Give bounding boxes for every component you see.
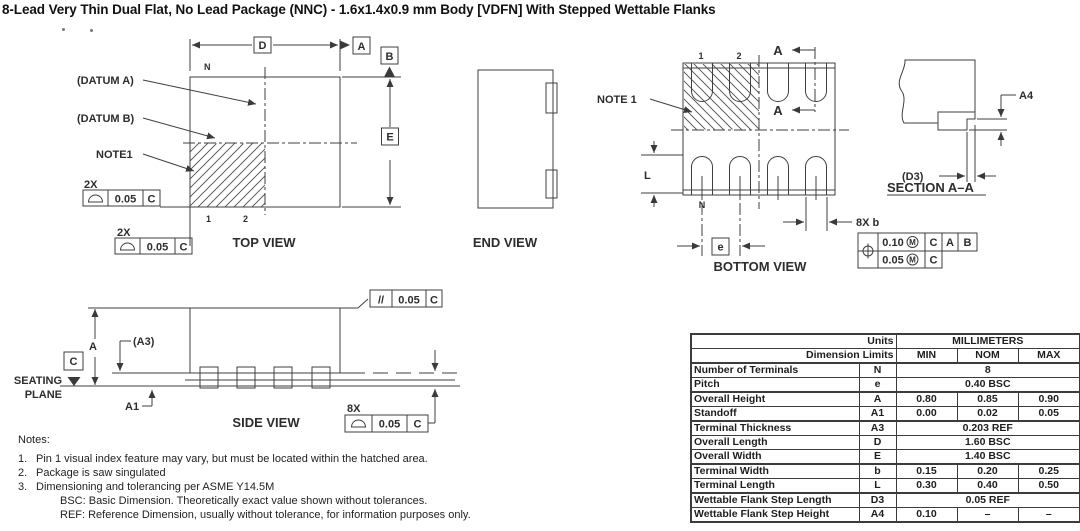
fcf-parallelism-frame: // 0.05 C	[370, 290, 442, 307]
note-item: 3. Dimensioning and tolerancing per ASME…	[18, 481, 618, 494]
top-view: D A B E N 1 2 (DATUM A) (DATUM B) NOTE1	[77, 37, 401, 254]
dim-l-label: L	[644, 170, 651, 182]
dim-value: 0.05	[1018, 407, 1080, 422]
seating-plane-label: SEATING	[14, 375, 62, 387]
table-row: Pitche0.40 BSC	[691, 378, 1080, 393]
bottom-view: A A 1 2 NOTE 1 L N e 8X b	[597, 43, 977, 274]
dim-name: Overall Width	[691, 450, 859, 465]
table-header-row: Dimension Limits MIN NOM MAX	[691, 349, 1080, 364]
fcf-tolerance: 0.05	[379, 419, 400, 431]
dim-name: Terminal Width	[691, 464, 859, 479]
dim-symbol: A4	[859, 508, 896, 523]
section-view: A4 (D3) SECTION A–A	[887, 60, 1034, 195]
col-max: MAX	[1018, 349, 1080, 364]
pitch-e-label: e	[717, 242, 723, 254]
fcf-datum: C	[414, 419, 422, 431]
section-label-a: A	[773, 103, 783, 118]
note-item: 1. Pin 1 visual index feature may vary, …	[18, 453, 618, 466]
pin2-label: 2	[243, 214, 248, 224]
note-number: 1.	[18, 453, 36, 466]
table-row: Wettable Flank Step HeightA40.10––	[691, 508, 1080, 523]
note1-callout: NOTE 1	[597, 94, 637, 106]
terminal	[200, 367, 218, 388]
qty-8x-b-label: 8X b	[856, 217, 880, 229]
datum-b-flag: B	[386, 51, 394, 63]
end-view-caption: END VIEW	[473, 235, 538, 250]
note-number: 2.	[18, 467, 36, 480]
units-label: Units	[691, 334, 896, 349]
dim-symbol: b	[859, 464, 896, 479]
dim-value: 0.30	[896, 479, 957, 494]
dim-value: 0.20	[957, 464, 1018, 479]
note-text: Pin 1 visual index feature may vary, but…	[36, 453, 428, 466]
table-row: Terminal ThicknessA30.203 REF	[691, 421, 1080, 436]
fcf-tolerance: 0.05	[115, 194, 136, 206]
terminal	[274, 367, 292, 388]
dim-name: Wettable Flank Step Length	[691, 493, 859, 508]
dim-a4-label: A4	[1019, 90, 1034, 102]
notes-heading: Notes:	[18, 434, 618, 446]
dim-value: 0.02	[957, 407, 1018, 422]
dim-name: Number of Terminals	[691, 363, 859, 378]
notes-section: Notes: 1. Pin 1 visual index feature may…	[18, 434, 618, 523]
end-view-body	[478, 70, 553, 208]
dim-value: 0.203 REF	[896, 421, 1080, 436]
dim-value: 0.85	[957, 392, 1018, 407]
terminal-tab	[546, 83, 557, 113]
note-subitem: REF: Reference Dimension, usually withou…	[60, 509, 618, 522]
units-value: MILLIMETERS	[896, 334, 1080, 349]
datum-a-callout: (DATUM A)	[77, 75, 134, 87]
dim-symbol: E	[859, 450, 896, 465]
datum-c-flag: C	[70, 356, 78, 368]
dim-symbol: N	[859, 363, 896, 378]
fcf-position-frame: 0.10 M C A B 0.05 M C	[858, 233, 977, 268]
dim-value: 0.10	[896, 508, 957, 523]
terminal	[237, 367, 255, 388]
fcf-tolerance: 0.05	[882, 255, 903, 267]
datum-b-triangle-icon	[384, 67, 395, 78]
fcf-tolerance: 0.05	[398, 295, 419, 307]
fcf-datum: A	[946, 237, 954, 249]
dim-symbol: D3	[859, 493, 896, 508]
fcf-datum: C	[430, 295, 438, 307]
pin1-label: 1	[698, 51, 703, 61]
dim-name: Wettable Flank Step Height	[691, 508, 859, 523]
side-view-body	[190, 308, 340, 373]
dim-name: Terminal Thickness	[691, 421, 859, 436]
table-row: StandoffA10.000.020.05	[691, 407, 1080, 422]
profile-surface-icon	[352, 420, 366, 427]
col-min: MIN	[896, 349, 957, 364]
dim-value: 0.50	[1018, 479, 1080, 494]
datum-b-callout: (DATUM B)	[77, 113, 135, 125]
datasheet-page: 8-Lead Very Thin Dual Flat, No Lead Pack…	[0, 0, 1080, 531]
pin2-label: 2	[736, 51, 741, 61]
fcf-datum: C	[930, 237, 938, 249]
datum-a-flag: A	[358, 41, 366, 53]
fcf-tolerance: 0.05	[147, 242, 168, 254]
note-text: Dimensioning and tolerancing per ASME Y1…	[36, 481, 274, 494]
dim-name: Terminal Length	[691, 479, 859, 494]
table-row: Terminal Widthb0.150.200.25	[691, 464, 1080, 479]
note-subitem: BSC: Basic Dimension. Theoretically exac…	[60, 495, 618, 508]
dim-name: Overall Height	[691, 392, 859, 407]
dim-value: 0.40 BSC	[896, 378, 1080, 393]
pin1-hatch-area	[191, 144, 266, 207]
terminal	[312, 367, 330, 388]
section-caption: SECTION A–A	[887, 180, 975, 195]
dim-value: 0.15	[896, 464, 957, 479]
table-row: Wettable Flank Step LengthD30.05 REF	[691, 493, 1080, 508]
terminal-pad	[768, 63, 789, 102]
parallelism-icon: //	[378, 295, 384, 307]
dim-value: 0.25	[1018, 464, 1080, 479]
limits-label: Dimension Limits	[691, 349, 896, 364]
dim-symbol: D	[859, 436, 896, 450]
bottom-view-caption: BOTTOM VIEW	[714, 259, 808, 274]
seating-plane-label: PLANE	[25, 389, 62, 401]
terminal-pad	[806, 63, 827, 102]
note-item: 2. Package is saw singulated	[18, 467, 618, 480]
qty-2x-label: 2X	[84, 179, 98, 191]
col-nom: NOM	[957, 349, 1018, 364]
table-header-row: Units MILLIMETERS	[691, 334, 1080, 349]
dimension-table: Units MILLIMETERS Dimension Limits MIN N…	[690, 333, 1080, 523]
dim-value: 0.40	[957, 479, 1018, 494]
terminal-count-label: N	[204, 62, 211, 72]
mmc-m: M	[909, 238, 916, 247]
dim-value: 0.90	[1018, 392, 1080, 407]
dim-a-label: A	[89, 341, 97, 353]
datum-triangle-icon	[68, 377, 81, 386]
note1-callout: NOTE1	[96, 149, 133, 161]
table-row: Overall HeightA0.800.850.90	[691, 392, 1080, 407]
dim-value: –	[957, 508, 1018, 523]
profile-surface-icon	[121, 243, 135, 250]
dim-a1-label: A1	[125, 401, 139, 413]
table-row: Overall LengthD1.60 BSC	[691, 436, 1080, 450]
table-row: Number of TerminalsN8	[691, 363, 1080, 378]
dim-e-label: E	[386, 132, 393, 144]
pin1-label: 1	[206, 214, 211, 224]
dim-table-body: Units MILLIMETERS Dimension Limits MIN N…	[691, 334, 1080, 522]
dim-value: 1.60 BSC	[896, 436, 1080, 450]
table-row: Overall WidthE1.40 BSC	[691, 450, 1080, 465]
fcf-datum: C	[930, 255, 938, 267]
side-view-caption: SIDE VIEW	[232, 415, 300, 430]
top-view-caption: TOP VIEW	[232, 235, 296, 250]
fcf-datum: B	[964, 237, 972, 249]
dim-name: Standoff	[691, 407, 859, 422]
terminal-tab	[546, 170, 557, 198]
dim-symbol: L	[859, 479, 896, 494]
profile-surface-icon	[89, 195, 103, 202]
section-body	[899, 60, 975, 123]
dim-name: Overall Length	[691, 436, 859, 450]
pin1-hatch-area	[684, 64, 759, 130]
dim-value: 0.80	[896, 392, 957, 407]
table-row: Terminal LengthL0.300.400.50	[691, 479, 1080, 494]
dim-d-label: D	[259, 40, 267, 52]
note-text: Package is saw singulated	[36, 467, 166, 480]
note-number: 3.	[18, 481, 36, 494]
fcf-datum: C	[148, 194, 156, 206]
side-view: // 0.05 C A (A3) C SEATING	[14, 290, 460, 432]
fcf-datum: C	[180, 242, 188, 254]
dim-value: 0.05 REF	[896, 493, 1080, 508]
fcf-profile-frame: 0.05 C	[345, 415, 428, 432]
dim-value: –	[1018, 508, 1080, 523]
mmc-m: M	[909, 256, 916, 265]
dim-symbol: A1	[859, 407, 896, 422]
dim-symbol: e	[859, 378, 896, 393]
dim-value: 0.00	[896, 407, 957, 422]
dim-a3-label: (A3)	[133, 336, 155, 348]
datum-a-arrow-icon	[340, 41, 350, 50]
end-view: END VIEW	[473, 70, 557, 250]
dim-symbol: A3	[859, 421, 896, 436]
qty-2x-label: 2X	[117, 227, 131, 239]
qty-8x-label: 8X	[347, 403, 361, 415]
dim-value: 1.40 BSC	[896, 450, 1080, 465]
dim-symbol: A	[859, 392, 896, 407]
dim-name: Pitch	[691, 378, 859, 393]
fcf-tolerance: 0.10	[882, 237, 903, 249]
dim-value: 8	[896, 363, 1080, 378]
section-terminal	[938, 112, 975, 130]
section-label-a: A	[773, 43, 783, 58]
